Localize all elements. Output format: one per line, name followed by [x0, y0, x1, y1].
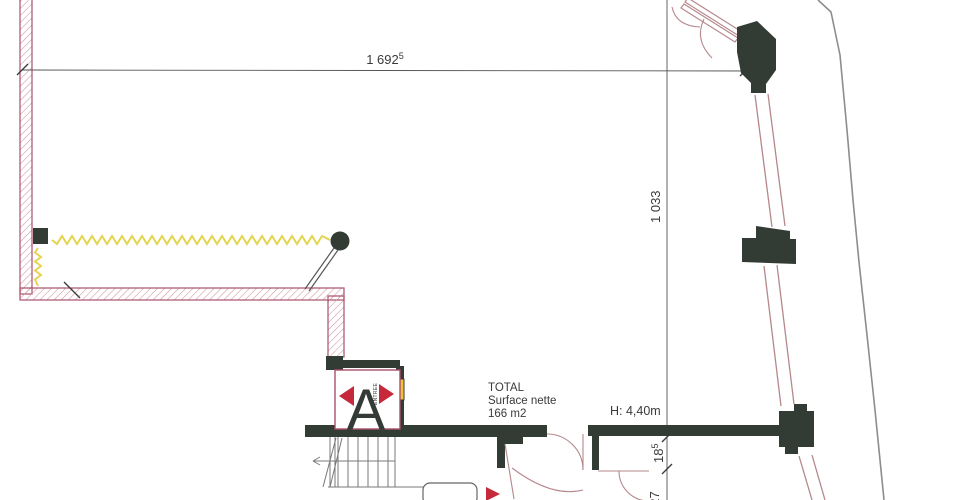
stair-arrow-icon — [313, 457, 320, 461]
surface-nette-label: Surface nette — [488, 395, 556, 407]
window-band-2b — [777, 265, 794, 404]
window-band-3b — [812, 455, 825, 500]
staircase — [313, 437, 438, 500]
plot-boundary-line — [818, 0, 884, 500]
door-swing-b — [512, 468, 583, 492]
facade-pillar-mid — [742, 226, 796, 264]
dimension-top: 1 6925 — [17, 51, 757, 76]
hatched-walls — [20, 0, 344, 357]
elevator-letter: A — [347, 378, 386, 443]
window-band-2a — [764, 266, 781, 406]
entrance-arrow-icon — [486, 487, 500, 500]
floor-plan-drawing: 1 6925 1 033 185 227 — [0, 0, 960, 500]
door-swing-a — [547, 434, 583, 470]
bottom-doors — [423, 434, 649, 500]
interior-wall-stub-left — [497, 444, 505, 468]
elevator-wall-topleft — [326, 356, 343, 370]
door-leaf-b — [505, 444, 514, 499]
wall-post — [33, 228, 48, 244]
door-leaf-2 — [681, 4, 738, 42]
annotations: TOTAL Surface nette 166 m2 H: 4,40m — [488, 382, 661, 420]
left-wall — [20, 0, 32, 294]
interior-wall-notch — [497, 434, 523, 444]
elevator-wall-top — [343, 360, 400, 368]
dimension-1033-label: 1 033 — [648, 190, 663, 223]
dimension-top-line — [22, 70, 757, 71]
insulation-zigzag-horizontal — [52, 236, 330, 244]
window-band-1b — [768, 94, 785, 226]
stair-cross-1 — [330, 438, 342, 487]
strut-line-1 — [305, 248, 334, 289]
window-band-3a — [799, 456, 812, 500]
strut-line-2 — [309, 250, 338, 291]
insulation — [35, 236, 330, 286]
ceiling-height-label: H: 4,40m — [610, 404, 661, 418]
bottom-left-wall — [20, 288, 344, 300]
top-entrance-door — [672, 0, 742, 58]
round-column — [331, 232, 350, 251]
door-swing-c — [619, 471, 649, 500]
dimension-185-label: 185 — [650, 444, 666, 463]
window-band-1a — [755, 95, 772, 227]
insulation-zigzag-vertical — [35, 248, 41, 286]
dimension-top-label: 1 6925 — [366, 51, 404, 67]
dimension-227-label: 227 — [647, 491, 662, 500]
interior-wall-stub-right — [592, 436, 599, 470]
total-label: TOTAL — [488, 382, 525, 394]
entrance-mat — [423, 483, 477, 500]
facade-pillar-top — [737, 21, 776, 93]
door-leaf-1 — [685, 0, 742, 36]
interior-wall-right — [588, 425, 785, 436]
area-label: 166 m2 — [488, 408, 526, 420]
elevator-side-wall — [328, 296, 344, 357]
